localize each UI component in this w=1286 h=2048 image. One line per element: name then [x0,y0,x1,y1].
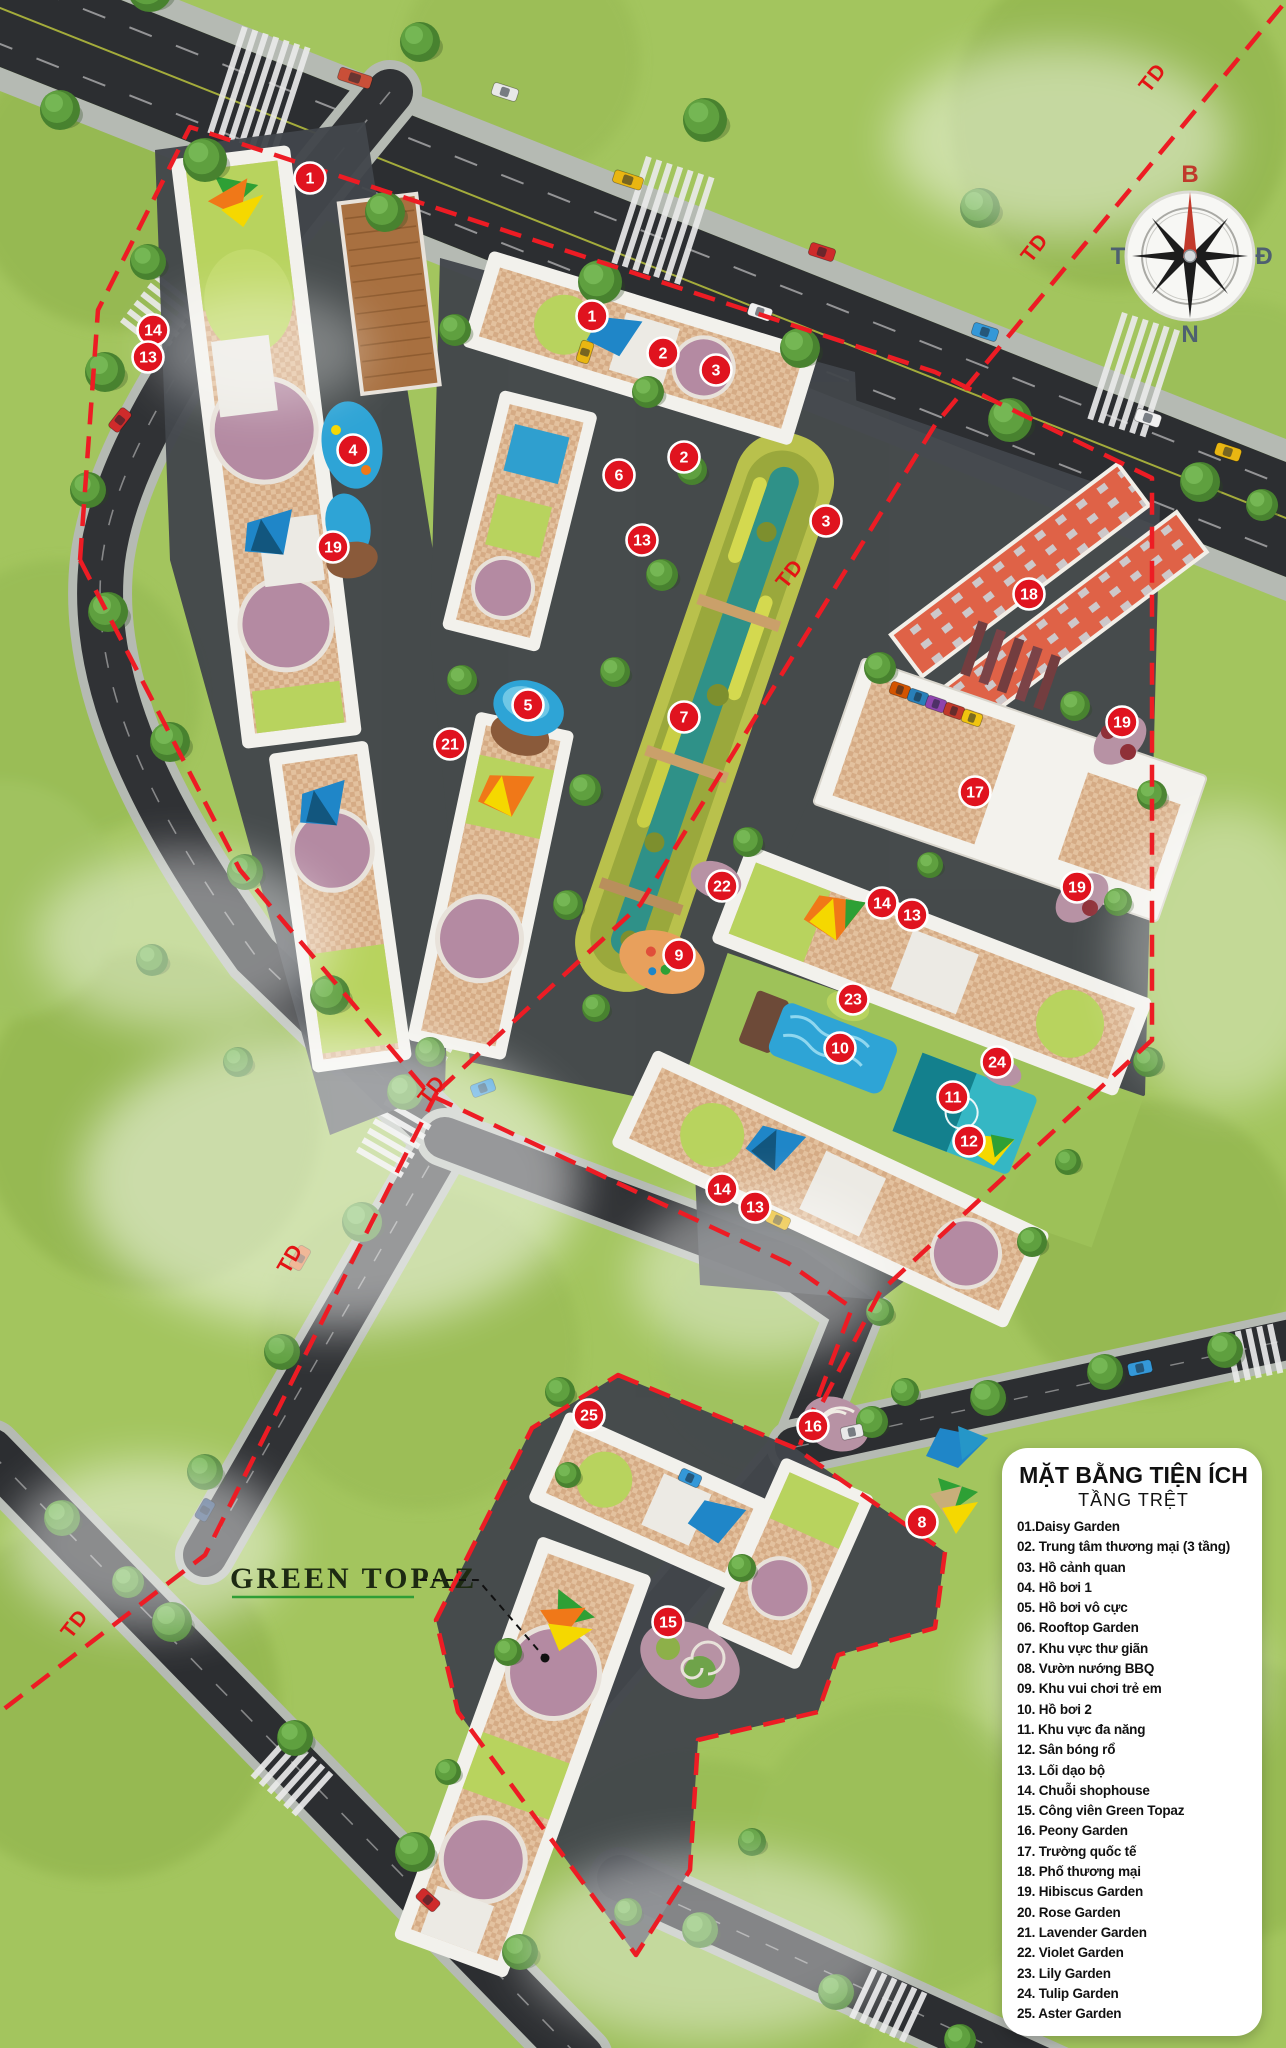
svg-text:13: 13 [139,350,157,367]
svg-text:4: 4 [349,443,358,460]
legend-item: 13. Lối dạo bộ [1017,1761,1250,1781]
svg-text:16: 16 [804,1419,822,1436]
marker-19: 19 [1062,872,1093,903]
svg-text:9: 9 [675,948,684,965]
marker-13: 13 [133,342,164,373]
marker-25: 25 [574,1400,605,1431]
marker-18: 18 [1014,579,1045,610]
marker-9: 9 [664,940,695,971]
marker-14: 14 [707,1174,738,1205]
legend-item: 18. Phố thương mại [1017,1862,1250,1882]
project-name-label: GREEN TOPAZ [230,1562,477,1595]
marker-21: 21 [435,729,466,760]
svg-text:19: 19 [1113,715,1131,732]
legend-item: 03. Hồ cảnh quan [1017,1558,1250,1578]
marker-11: 11 [938,1082,969,1113]
legend-item: 08. Vườn nướng BBQ [1017,1659,1250,1679]
compass-north-label: B [1181,161,1198,188]
svg-text:1: 1 [306,171,315,188]
svg-text:23: 23 [844,992,862,1009]
legend-item: 04. Hồ bơi 1 [1017,1578,1250,1598]
legend-item: 23. Lily Garden [1017,1964,1250,1984]
svg-text:18: 18 [1020,587,1038,604]
legend-panel: MẶT BẰNG TIỆN ÍCH TẦNG TRỆT 01.Daisy Gar… [1002,1448,1262,2036]
legend-item: 11. Khu vực đa năng [1017,1720,1250,1740]
marker-13: 13 [897,900,928,931]
marker-1: 1 [295,163,326,194]
marker-19: 19 [318,532,349,563]
legend-item: 02. Trung tâm thương mại (3 tầng) [1017,1537,1250,1557]
marker-2: 2 [648,338,679,369]
legend-item: 15. Công viên Green Topaz [1017,1801,1250,1821]
legend-item: 07. Khu vực thư giãn [1017,1639,1250,1659]
marker-13: 13 [740,1192,771,1223]
marker-5: 5 [513,690,544,721]
legend-item: 16. Peony Garden [1017,1821,1250,1841]
svg-text:7: 7 [680,710,689,727]
marker-22: 22 [707,871,738,902]
marker-14: 14 [138,315,169,346]
svg-text:25: 25 [580,1408,598,1425]
legend-item: 17. Trường quốc tế [1017,1842,1250,1862]
svg-text:1: 1 [588,309,597,326]
marker-6: 6 [604,460,635,491]
compass-west-label: T [1111,243,1126,270]
marker-13: 13 [627,525,658,556]
marker-17: 17 [960,777,991,808]
site-plan-screenshot: TDTDTDTDTDTD B Đ N T GREEN TOPAZ 1141341… [0,0,1286,2048]
legend-title: MẶT BẰNG TIỆN ÍCH [1017,1462,1250,1489]
marker-8: 8 [907,1507,938,1538]
legend-item: 10. Hồ bơi 2 [1017,1700,1250,1720]
svg-text:17: 17 [966,785,984,802]
legend-item: 20. Rose Garden [1017,1903,1250,1923]
svg-text:13: 13 [903,908,921,925]
legend-item: 05. Hồ bơi vô cực [1017,1598,1250,1618]
marker-12: 12 [954,1126,985,1157]
svg-text:19: 19 [324,540,342,557]
svg-text:15: 15 [659,1615,677,1632]
legend-item: 14. Chuỗi shophouse [1017,1781,1250,1801]
svg-text:5: 5 [524,698,533,715]
marker-1: 1 [577,301,608,332]
marker-16: 16 [798,1411,829,1442]
legend-item: 06. Rooftop Garden [1017,1618,1250,1638]
svg-text:11: 11 [945,1090,962,1107]
svg-text:12: 12 [960,1134,978,1151]
svg-text:8: 8 [918,1515,927,1532]
legend-subtitle: TẦNG TRỆT [1017,1490,1250,1511]
marker-3: 3 [701,355,732,386]
legend-item: 12. Sân bóng rổ [1017,1740,1250,1760]
marker-2: 2 [669,442,700,473]
svg-text:2: 2 [680,450,689,467]
svg-text:3: 3 [712,363,721,380]
svg-text:3: 3 [822,514,831,531]
legend-item: 22. Violet Garden [1017,1943,1250,1963]
legend-item: 21. Lavender Garden [1017,1923,1250,1943]
legend-item: 19. Hibiscus Garden [1017,1882,1250,1902]
legend-item: 25. Aster Garden [1017,2004,1250,2024]
legend-item: 09. Khu vui chơi trẻ em [1017,1679,1250,1699]
svg-text:2: 2 [659,346,668,363]
marker-7: 7 [669,702,700,733]
svg-text:14: 14 [713,1182,731,1199]
marker-14: 14 [867,888,898,919]
legend-list: 01.Daisy Garden02. Trung tâm thương mại … [1017,1517,1250,2024]
marker-15: 15 [653,1607,684,1638]
svg-text:21: 21 [441,737,459,754]
svg-text:24: 24 [988,1055,1006,1072]
marker-19: 19 [1107,707,1138,738]
svg-text:22: 22 [713,879,731,896]
marker-4: 4 [338,435,369,466]
svg-text:13: 13 [633,533,651,550]
svg-text:6: 6 [615,468,624,485]
svg-text:10: 10 [831,1041,849,1058]
marker-3: 3 [811,506,842,537]
legend-item: 01.Daisy Garden [1017,1517,1250,1537]
legend-item: 24. Tulip Garden [1017,1984,1250,2004]
svg-text:14: 14 [144,323,162,340]
svg-text:14: 14 [873,896,891,913]
compass-south-label: N [1181,321,1198,348]
marker-23: 23 [838,984,869,1015]
svg-text:13: 13 [746,1200,764,1217]
svg-text:19: 19 [1068,880,1086,897]
compass-east-label: Đ [1255,243,1272,270]
marker-10: 10 [825,1033,856,1064]
marker-24: 24 [982,1047,1013,1078]
